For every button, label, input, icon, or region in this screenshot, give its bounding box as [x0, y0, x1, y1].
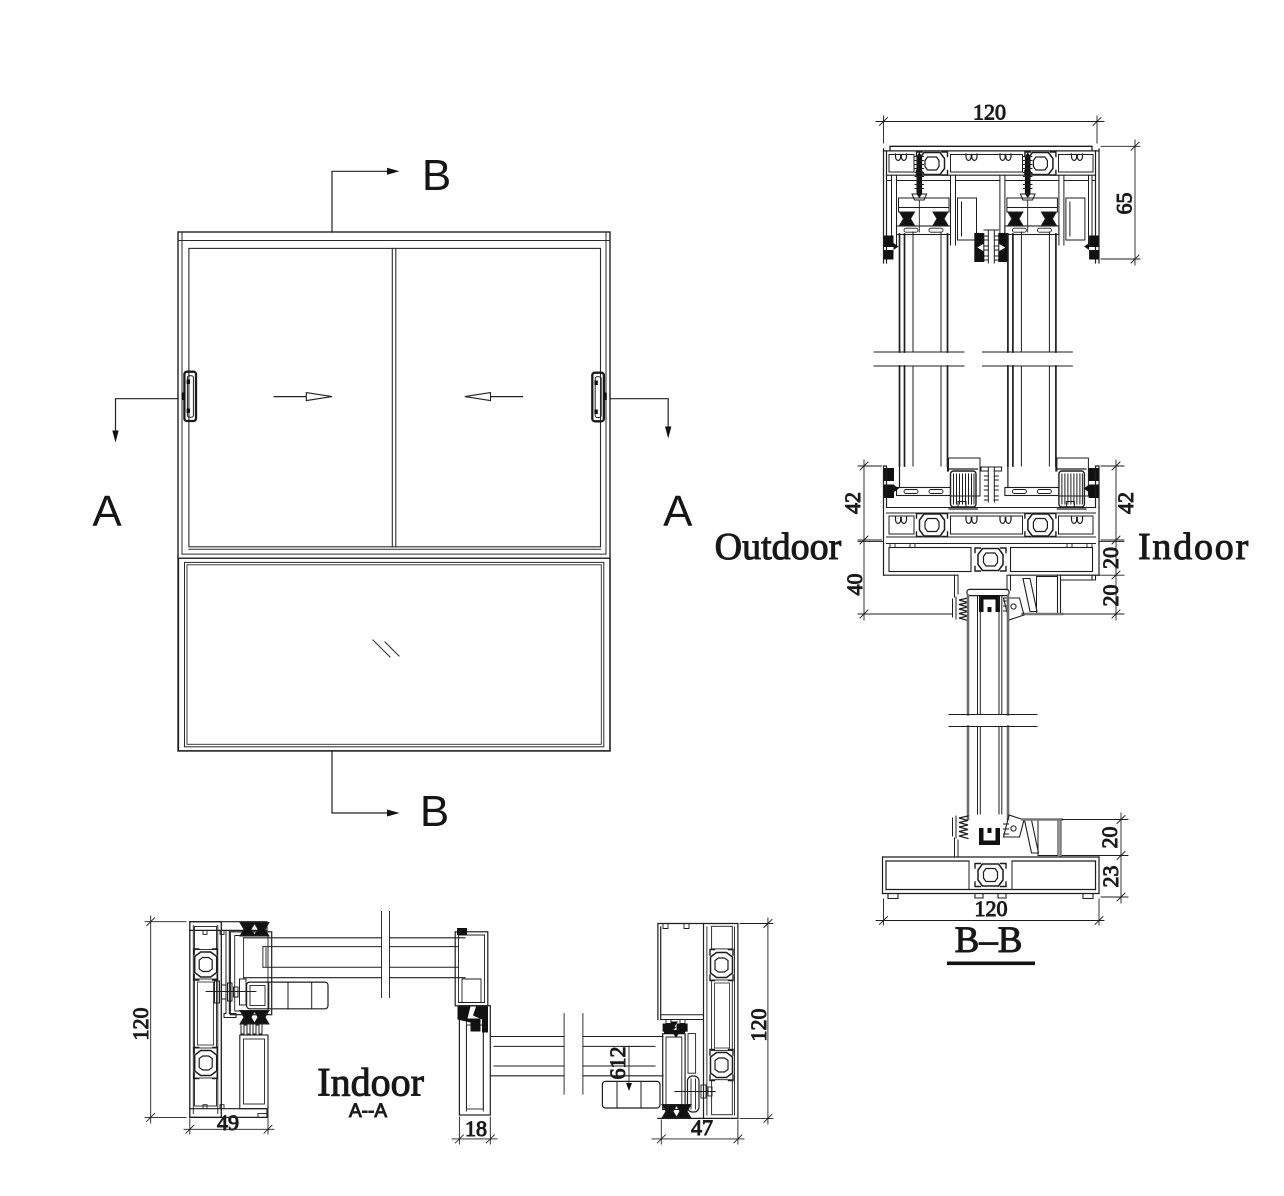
- svg-text:120: 120: [128, 1008, 153, 1041]
- svg-text:A: A: [92, 487, 122, 536]
- svg-text:120: 120: [746, 1009, 771, 1042]
- svg-text:42: 42: [1113, 492, 1138, 514]
- svg-text:20: 20: [1098, 547, 1123, 569]
- svg-text:Outdoor: Outdoor: [715, 526, 842, 568]
- svg-text:B: B: [422, 151, 451, 200]
- svg-text:A: A: [663, 487, 693, 536]
- svg-text:B–B: B–B: [955, 920, 1023, 961]
- svg-text:120: 120: [975, 896, 1008, 921]
- svg-text:47: 47: [691, 1115, 713, 1140]
- svg-text:612: 612: [605, 1047, 630, 1080]
- svg-text:65: 65: [1112, 193, 1137, 215]
- svg-text:A--A: A--A: [349, 1101, 387, 1122]
- svg-text:B: B: [420, 787, 449, 836]
- svg-text:Indoor: Indoor: [317, 1060, 424, 1105]
- svg-text:18: 18: [465, 1116, 487, 1141]
- svg-text:23: 23: [1098, 866, 1123, 888]
- svg-text:49: 49: [217, 1110, 239, 1135]
- svg-text:120: 120: [973, 100, 1006, 125]
- svg-text:Indoor: Indoor: [1138, 526, 1250, 568]
- svg-text:42: 42: [840, 492, 865, 514]
- svg-text:40: 40: [842, 574, 867, 596]
- svg-text:20: 20: [1098, 585, 1123, 607]
- svg-text:20: 20: [1097, 827, 1122, 849]
